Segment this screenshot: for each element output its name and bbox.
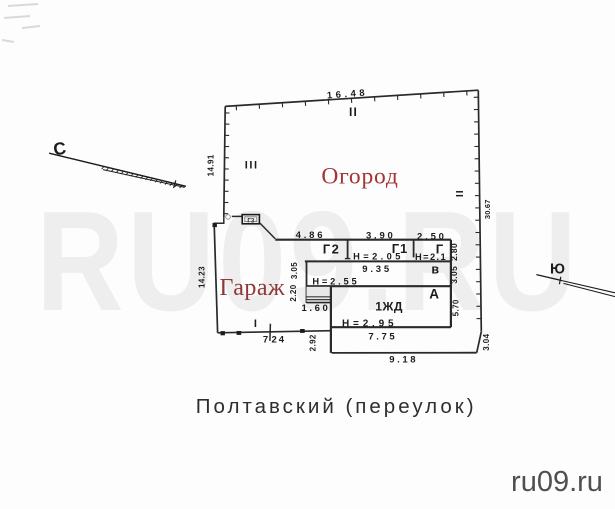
svg-text:Гараж: Гараж (219, 275, 285, 301)
svg-text:3.05: 3.05 (290, 262, 299, 279)
svg-text:ru09.ru: ru09.ru (511, 466, 603, 498)
svg-text:Н=2.05: Н=2.05 (353, 252, 404, 262)
svg-text:3.90: 3.90 (366, 231, 396, 242)
svg-text:Г2: Г2 (323, 242, 341, 257)
svg-text:9.18: 9.18 (389, 354, 418, 365)
svg-text:Н=2.55: Н=2.55 (312, 276, 359, 286)
svg-text:1.60: 1.60 (301, 303, 330, 314)
svg-text:Ю: Ю (550, 262, 565, 278)
svg-text:7.75: 7.75 (368, 332, 397, 343)
svg-text:Огород: Огород (321, 163, 398, 189)
svg-text:4.86: 4.86 (296, 230, 326, 241)
svg-text:5.70: 5.70 (451, 299, 460, 316)
svg-text:30.67: 30.67 (483, 199, 492, 219)
svg-text:в: в (431, 263, 439, 277)
svg-text:3.04: 3.04 (482, 333, 491, 350)
svg-text:II: II (454, 189, 466, 197)
svg-text:14.23: 14.23 (198, 266, 207, 288)
svg-text:I: I (254, 318, 257, 330)
svg-text:24: 24 (272, 335, 287, 346)
svg-text:2.80: 2.80 (449, 243, 459, 261)
svg-text:1ЖД: 1ЖД (375, 299, 403, 313)
svg-text:Г3: Г3 (247, 218, 255, 225)
svg-text:III: III (245, 159, 259, 171)
svg-text:7: 7 (263, 335, 268, 346)
svg-text:Н=2.95: Н=2.95 (342, 318, 397, 329)
svg-text:II: II (349, 105, 358, 119)
svg-text:3.05: 3.05 (449, 266, 459, 284)
svg-text:2.92: 2.92 (309, 334, 318, 351)
svg-text:2.20: 2.20 (289, 284, 298, 301)
svg-text:Н=2.1: Н=2.1 (415, 252, 447, 262)
svg-text:9.35: 9.35 (362, 264, 392, 275)
svg-text:А: А (429, 286, 439, 301)
svg-text:14.91: 14.91 (206, 154, 215, 176)
svg-text:Полтавский (переулок): Полтавский (переулок) (196, 395, 477, 418)
